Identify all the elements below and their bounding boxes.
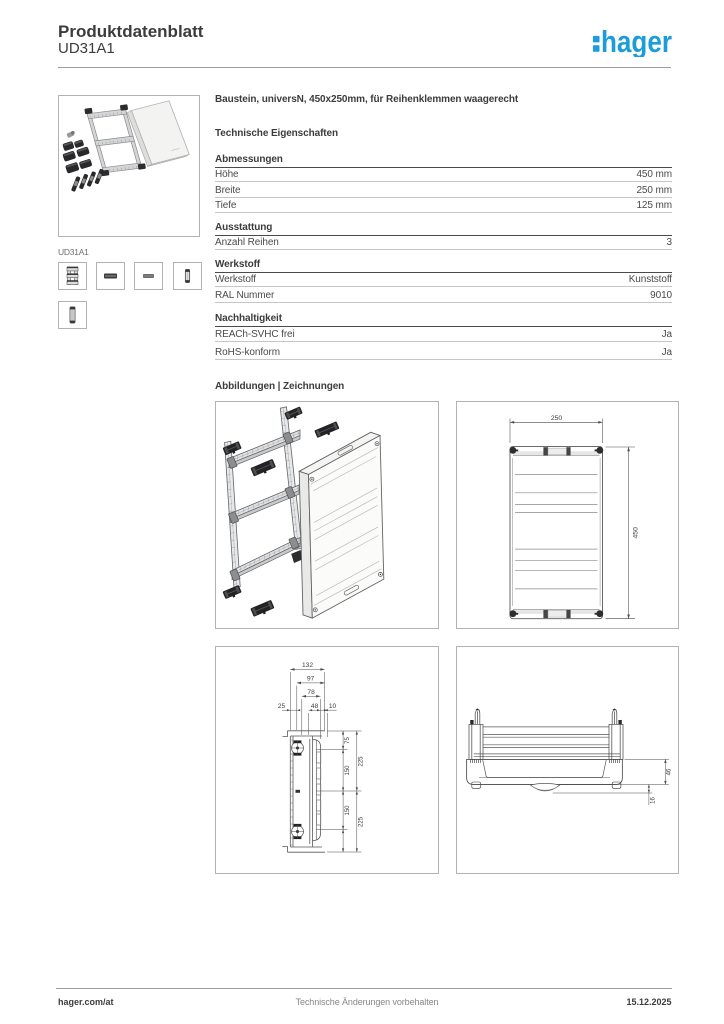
svg-text:16: 16	[650, 797, 656, 804]
svg-text:225: 225	[359, 816, 365, 827]
svg-text:75: 75	[345, 737, 351, 744]
svg-text:25: 25	[278, 703, 286, 710]
svg-text:48: 48	[311, 703, 319, 710]
svg-text:10: 10	[329, 703, 337, 710]
svg-text:250: 250	[551, 415, 563, 422]
svg-text:150: 150	[345, 805, 351, 816]
svg-text:225: 225	[359, 756, 365, 767]
svg-text:150: 150	[345, 765, 351, 776]
svg-text:46: 46	[667, 768, 673, 775]
svg-text:450: 450	[632, 527, 639, 539]
svg-text:78: 78	[307, 689, 315, 696]
svg-text:97: 97	[307, 676, 315, 683]
svg-text:hager: hager	[601, 27, 672, 57]
svg-text:132: 132	[302, 662, 313, 669]
